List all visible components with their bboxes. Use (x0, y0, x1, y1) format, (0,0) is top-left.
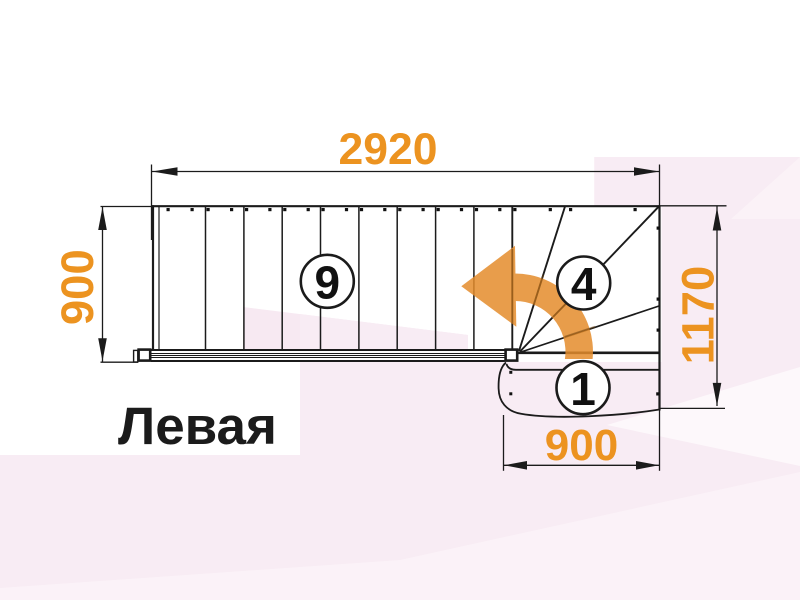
svg-text:900: 900 (52, 249, 103, 325)
svg-text:2920: 2920 (339, 125, 438, 174)
svg-text:Левая: Левая (118, 397, 277, 456)
svg-text:900: 900 (545, 421, 618, 470)
svg-text:1170: 1170 (672, 266, 723, 365)
svg-text:9: 9 (315, 257, 341, 309)
svg-text:1: 1 (570, 363, 596, 415)
svg-text:4: 4 (571, 258, 597, 310)
